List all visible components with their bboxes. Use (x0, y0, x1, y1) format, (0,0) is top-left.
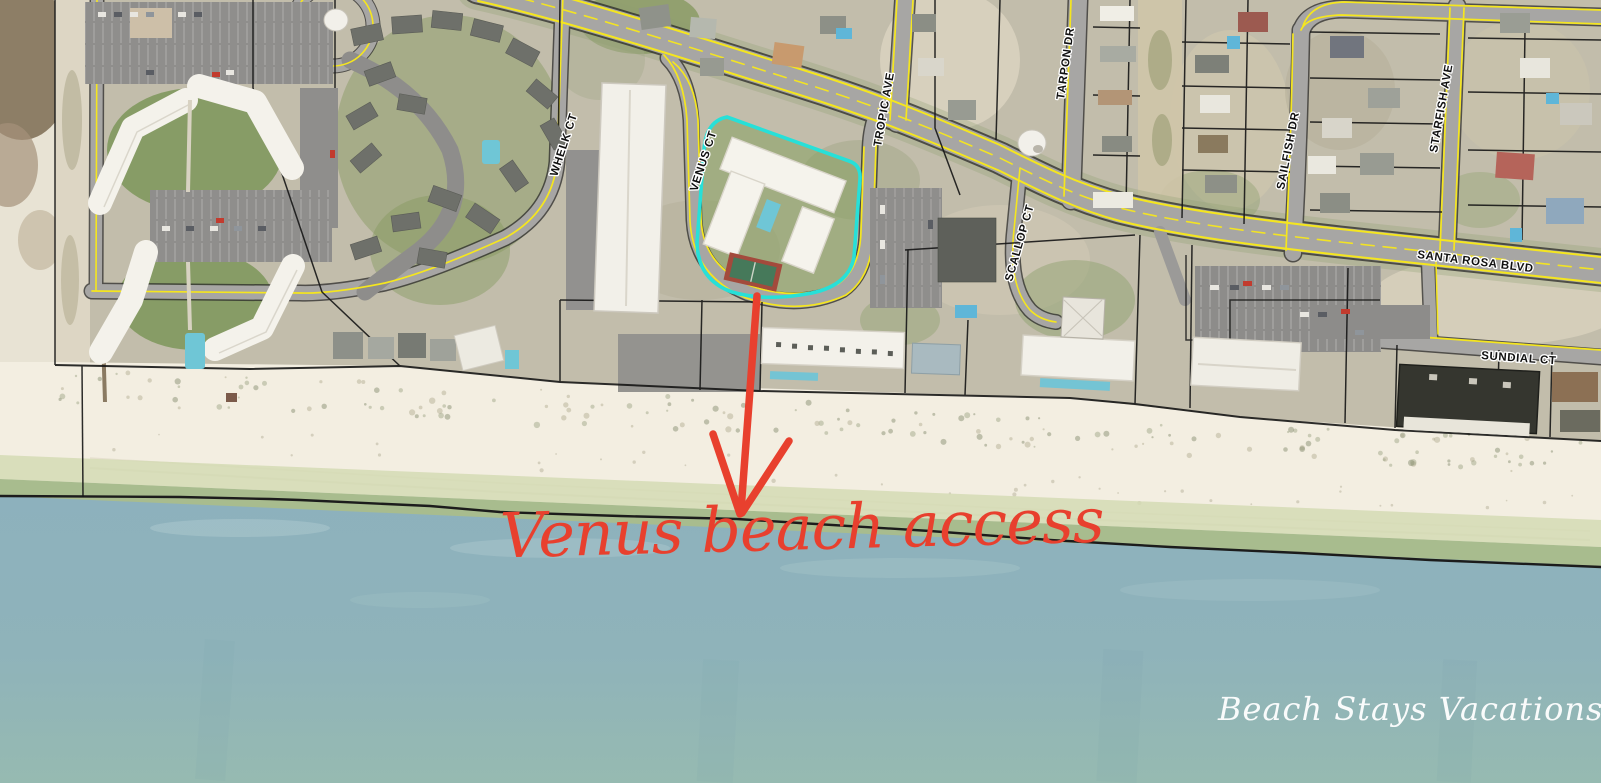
aerial-map: WHELK CT VENUS CT TROPIC AVE SCALLOP CT … (0, 0, 1601, 783)
map-canvas: WHELK CT VENUS CT TROPIC AVE SCALLOP CT … (0, 0, 1601, 783)
brand-watermark: Beach Stays Vacations (1218, 690, 1578, 728)
beach-access-annotation: Venus beach access (499, 491, 1060, 568)
